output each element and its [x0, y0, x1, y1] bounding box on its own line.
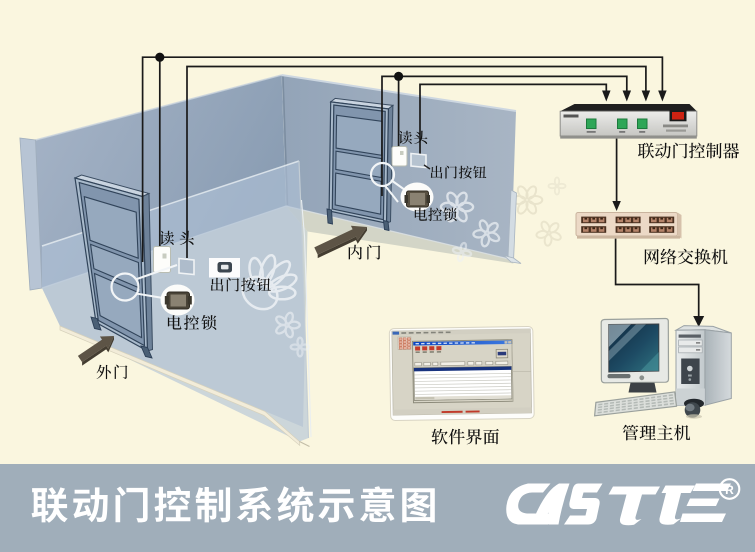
svg-text:R: R	[725, 483, 734, 497]
